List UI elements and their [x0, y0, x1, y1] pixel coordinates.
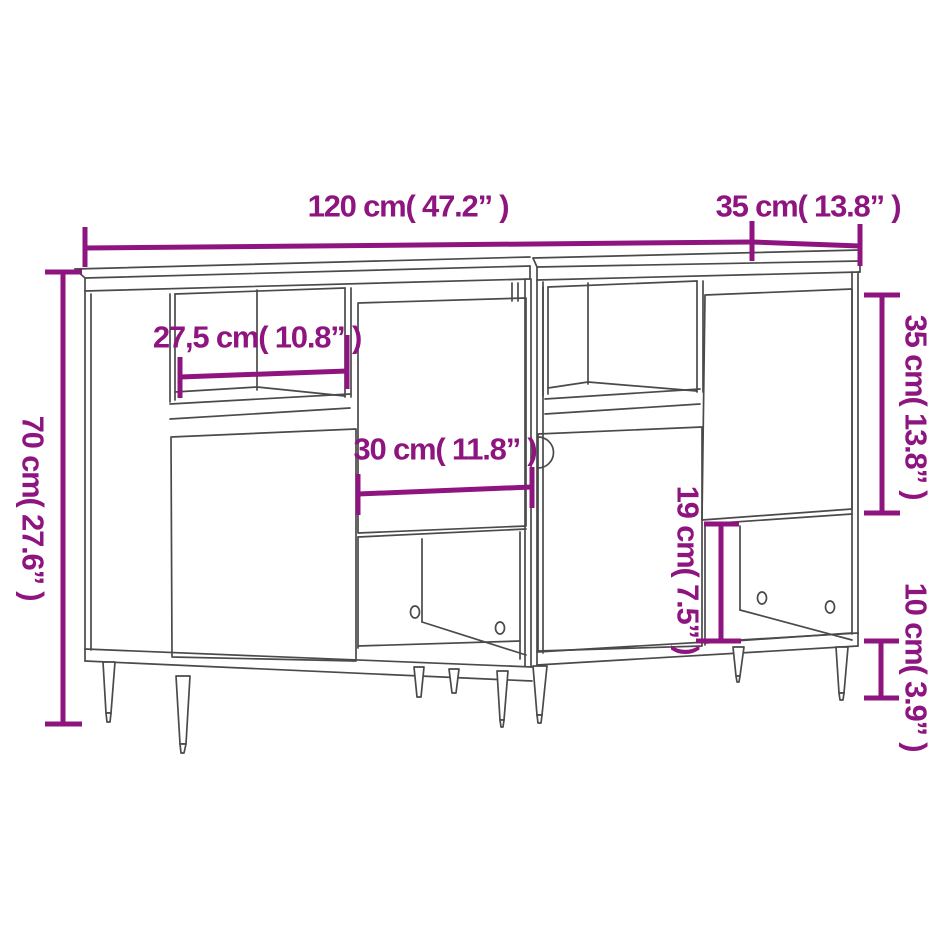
dim-upper-door-height-line [864, 295, 900, 513]
dim-overall-height-line [45, 272, 82, 724]
right-leg-1 [533, 666, 547, 715]
left-leg-4 [449, 669, 459, 693]
left-shelf-front-edge-lower [170, 408, 350, 419]
right-shelf-pin-hole-1 [758, 592, 767, 604]
right-leg-3 [836, 647, 848, 693]
dimension-lines [45, 221, 900, 724]
left-shelf-bottom [175, 387, 345, 396]
dim-label-lower-compartment-height: 19 cm( 7.5” ) [673, 486, 704, 655]
right-lower-door-handle-cutout [538, 437, 553, 468]
left-leg-5-foot [500, 720, 504, 727]
dim-label-upper-door-height: 35 cm( 13.8” ) [901, 315, 932, 500]
left-upper-door [358, 298, 526, 533]
right-leg-3-foot [839, 693, 844, 700]
left-leg-5 [497, 671, 508, 720]
dim-depth-top-line [752, 224, 860, 266]
sideboards-line-art [0, 0, 947, 947]
left-leg-1-foot [106, 713, 111, 722]
dim-label-overall-height: 70 cm( 27.6” ) [18, 416, 49, 601]
left-leg-1 [103, 662, 115, 713]
right-top-underside [537, 272, 860, 280]
left-shelf-pin-hole-1 [411, 606, 420, 618]
right-upper-door [702, 289, 852, 520]
left-lower-door [171, 429, 356, 661]
dim-door-width-line [358, 467, 532, 515]
dim-overall-width-rule [85, 242, 752, 248]
right-leg-2 [733, 647, 744, 676]
dim-label-leg-height: 10 cm( 3.9” ) [901, 583, 932, 752]
left-shelf-pin-hole-2 [496, 622, 505, 634]
dim-label-shelf-width: 27,5 cm( 10.8” ) [153, 322, 361, 353]
dim-label-depth-top: 35 cm( 13.8” ) [716, 191, 901, 222]
dimension-diagram: 120 cm( 47.2” ) 35 cm( 13.8” ) 27,5 cm( … [0, 0, 947, 947]
right-shelf-pin-hole-2 [826, 601, 835, 613]
right-shelf-front-edge [545, 389, 700, 399]
right-compartment-floor-back [740, 610, 852, 640]
left-compartment-floor-back [422, 622, 526, 655]
right-top-back-edge [533, 250, 860, 258]
dim-label-door-width: 30 cm( 11.8” ) [353, 434, 536, 465]
right-shelf-bottom [548, 382, 697, 391]
left-leg-3 [414, 667, 424, 697]
right-top-front-edge [537, 261, 860, 267]
dim-depth-top-rule [752, 242, 860, 246]
dim-leg-height-line [864, 641, 899, 698]
dim-shelf-width-rule [180, 371, 347, 377]
left-leg-2 [176, 676, 190, 744]
right-leg-2-foot [736, 676, 740, 682]
left-shelf-front-edge [170, 394, 350, 404]
dim-label-overall-width: 120 cm( 47.2” ) [308, 191, 509, 222]
right-top-left-corner [533, 258, 537, 267]
right-shelf-front-edge-lower [545, 404, 700, 414]
right-leg-1-foot [537, 715, 542, 723]
right-shelf-top [548, 281, 697, 287]
left-leg-2-foot [180, 744, 186, 753]
left-shelf-top [175, 288, 345, 294]
dim-door-width-rule [358, 487, 532, 494]
